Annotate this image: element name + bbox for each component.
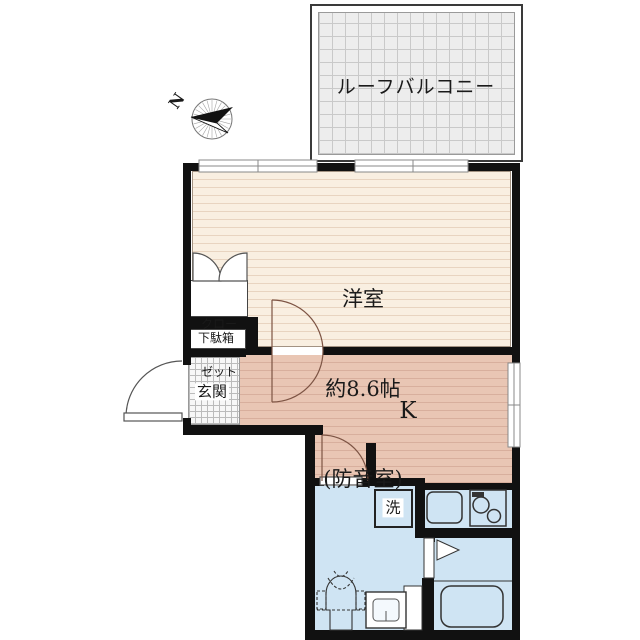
laundry-label: 洗 (382, 498, 403, 517)
stove-icon (470, 490, 506, 526)
washbasin-icon (366, 586, 422, 630)
fixtures-overlay (0, 0, 640, 640)
main-room-note: (防音室) (323, 464, 402, 494)
kitchen-label: K (399, 398, 416, 424)
sink-icon (427, 492, 462, 523)
closet-doors-icon (193, 253, 247, 281)
toilet-icon (317, 571, 365, 630)
shoe-box-label: 下駄箱 (198, 332, 234, 346)
entrance-label: 玄関 (195, 383, 229, 400)
window-icon (199, 160, 468, 172)
entrance-door-icon (124, 361, 182, 421)
balcony-label: ルーフバルコニー (337, 77, 495, 99)
main-room-name: 洋室 (323, 284, 402, 314)
bathtub-icon (434, 581, 512, 627)
compass-icon (191, 99, 233, 139)
floor-plan: ルーフバルコニー 洋室 約8.6帖 (防音室) クロー ゼット 下駄箱 玄関 K… (0, 0, 640, 640)
main-room-door-icon (272, 300, 323, 402)
window-icon (508, 363, 520, 447)
folding-door-icon (424, 538, 459, 578)
main-room-size: 約8.6帖 (323, 374, 402, 404)
